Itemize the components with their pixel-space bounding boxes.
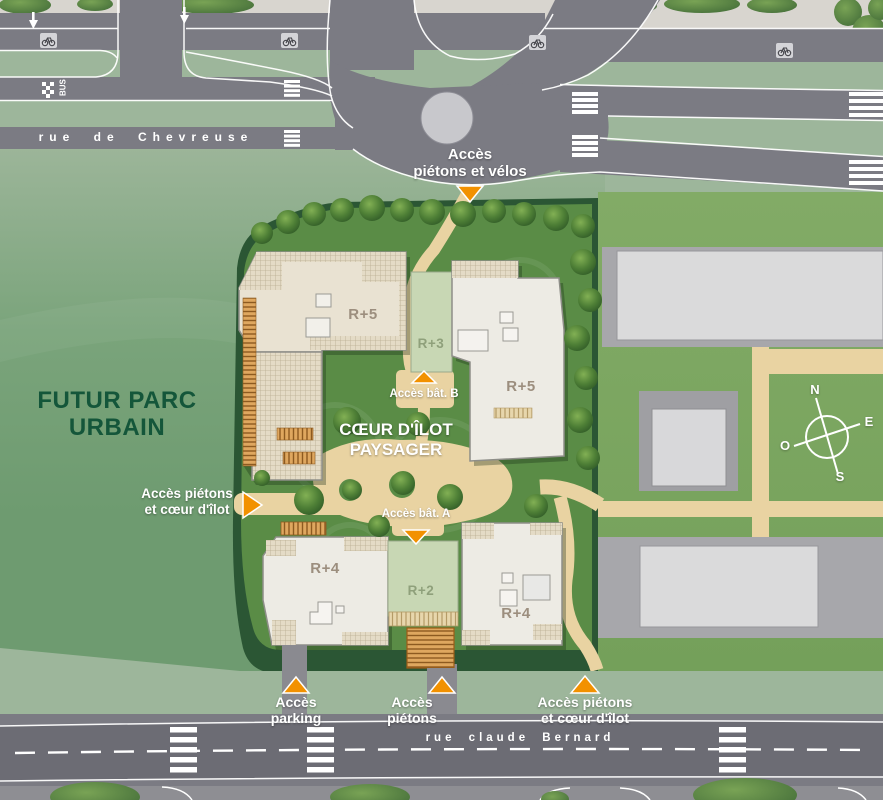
east-building-north (617, 251, 883, 340)
east-path-horizontal-top (769, 349, 883, 374)
roundabout (421, 92, 473, 144)
west-vertical-road (120, 0, 182, 88)
east-path-horizontal-bottom (598, 501, 883, 517)
west-stairs (281, 522, 326, 535)
east-building-south (640, 546, 818, 627)
map-graphics (0, 0, 883, 800)
east-building-square (652, 409, 726, 486)
south-ramp (389, 612, 458, 626)
building-southwest (263, 537, 388, 645)
balcony-strip (243, 298, 256, 466)
site-plan-map: BUS rue de Chevreuse Accès piétons et vé… (0, 0, 883, 800)
wing-r2 (388, 541, 458, 616)
building-southeast (462, 523, 562, 645)
center-vertical-road (330, 0, 414, 70)
wing-r3 (411, 272, 452, 372)
rue-de-chevreuse-road (0, 127, 354, 149)
south-stairs (407, 628, 454, 668)
ilot-site (233, 192, 602, 713)
